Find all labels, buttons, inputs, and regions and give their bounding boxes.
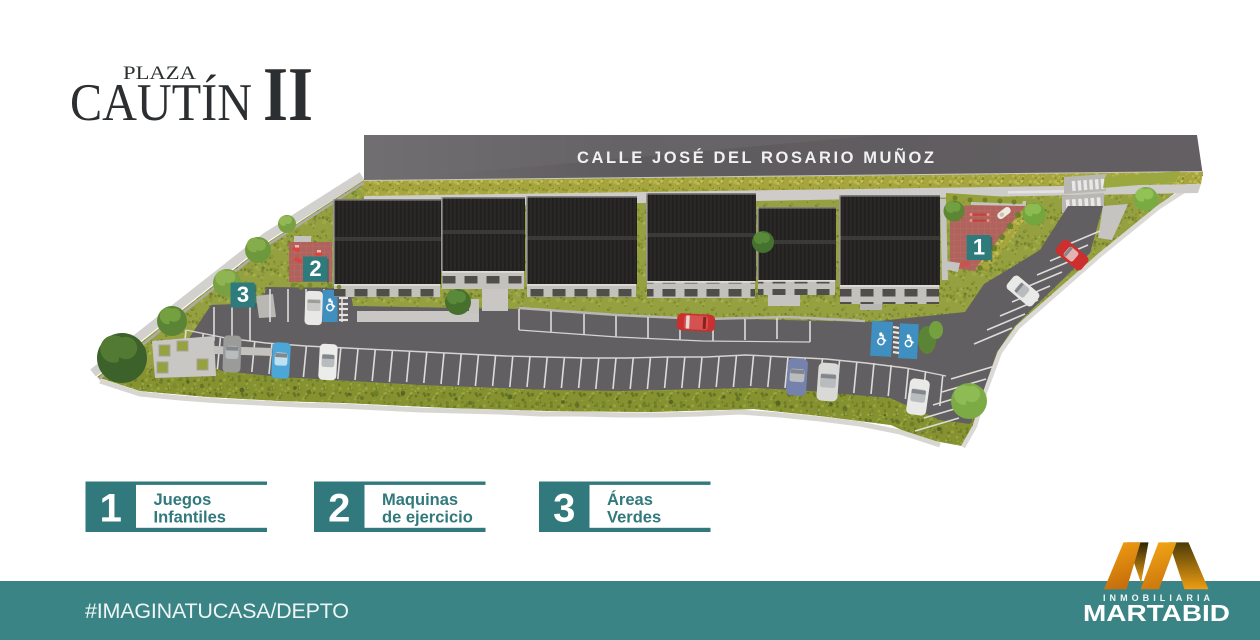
svg-text:2: 2 [309,256,321,281]
svg-text:II: II [263,51,313,137]
svg-text:CAUTÍN: CAUTÍN [70,74,252,132]
svg-text:#IMAGINATUCASA/DEPTO: #IMAGINATUCASA/DEPTO [85,599,349,623]
svg-text:Áreas: Áreas [607,490,653,509]
svg-text:2: 2 [328,487,350,531]
svg-text:Juegos: Juegos [154,491,212,509]
svg-text:CALLE JOSÉ DEL ROSARIO MUÑOZ: CALLE JOSÉ DEL ROSARIO MUÑOZ [577,147,934,167]
svg-text:1: 1 [100,487,122,531]
svg-text:MARTABID: MARTABID [1083,600,1230,626]
svg-text:Infantiles: Infantiles [154,509,226,527]
svg-text:1: 1 [973,235,985,260]
svg-text:de ejercicio: de ejercicio [382,509,473,527]
svg-text:Verdes: Verdes [607,509,661,527]
svg-text:3: 3 [553,487,575,531]
svg-text:3: 3 [237,282,249,307]
svg-text:Maquinas: Maquinas [382,491,458,509]
